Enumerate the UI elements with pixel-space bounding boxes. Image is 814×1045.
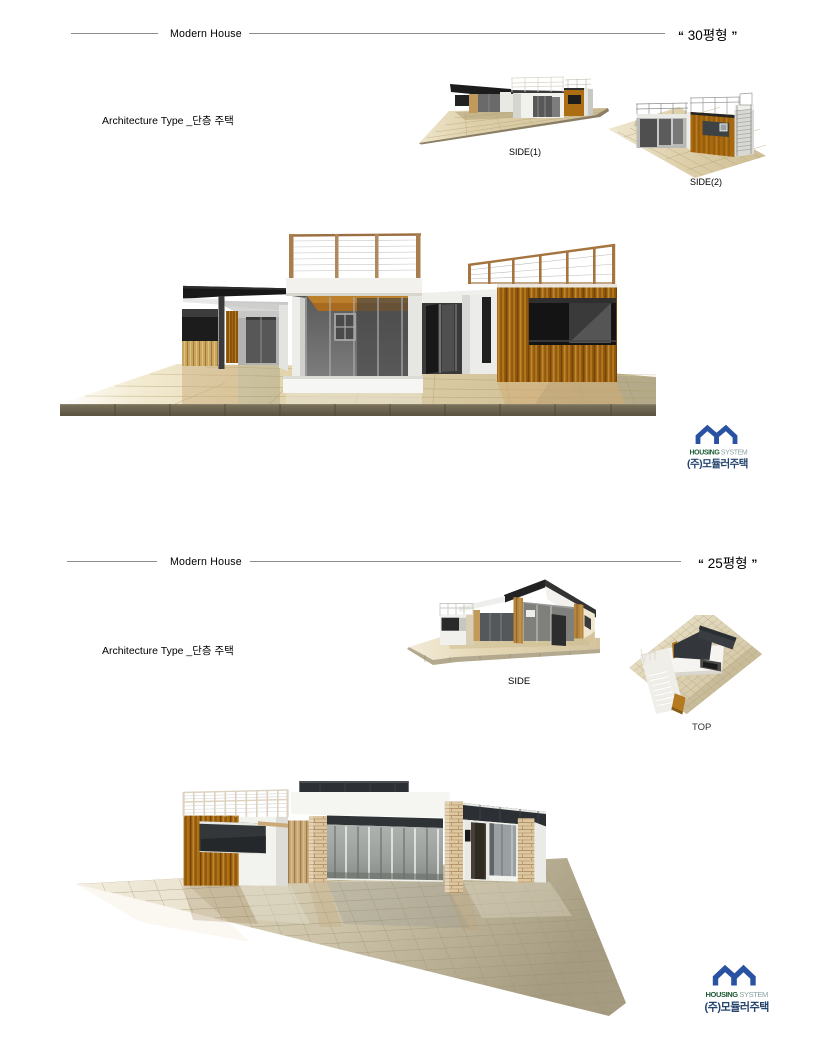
svg-text:HOUSING SYSTEM: HOUSING SYSTEM (690, 450, 748, 457)
svg-text:(주)모듈러주택: (주)모듈러주택 (705, 1000, 770, 1014)
svg-text:HOUSING SYSTEM: HOUSING SYSTEM (706, 990, 768, 999)
svg-text:(주)모듈러주택: (주)모듈러주택 (687, 457, 748, 470)
